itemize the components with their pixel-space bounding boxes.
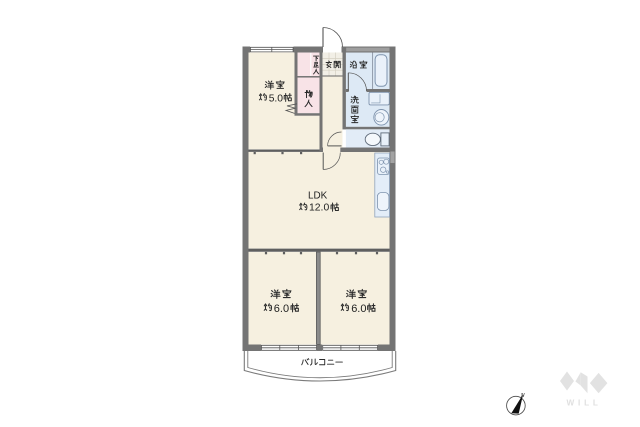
svg-text:N: N [520,392,526,399]
svg-text:LDK: LDK [308,190,328,201]
svg-text:6.0: 6.0 [274,303,289,315]
svg-text:WILL: WILL [567,399,602,408]
svg-text:6.0: 6.0 [351,303,366,315]
svg-text:5.0: 5.0 [269,93,284,104]
svg-text:12.0: 12.0 [309,203,329,214]
